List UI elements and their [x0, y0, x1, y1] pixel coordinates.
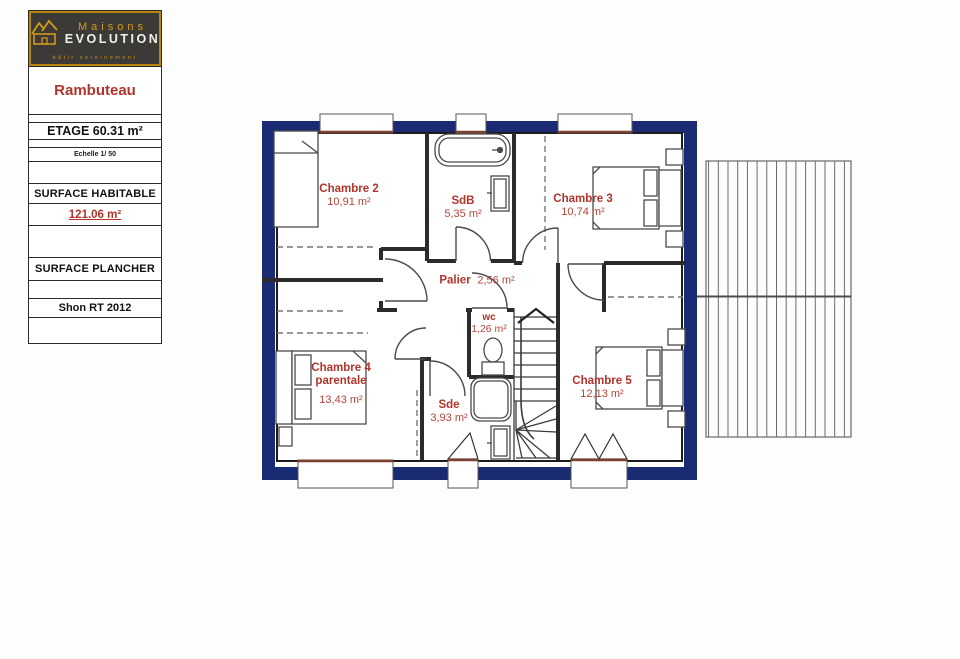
- bed-single-chambre2: [274, 131, 318, 227]
- shower-room-sink: [487, 426, 510, 459]
- bathtub: [435, 134, 510, 166]
- shower: [471, 378, 511, 421]
- toilet: [482, 338, 504, 375]
- floor-plan-page: Maisons EVOLUTION bâtir sereinement Ramb…: [0, 0, 960, 659]
- windows-top: [320, 114, 632, 133]
- floor-plan-drawing: [0, 0, 960, 659]
- roof-hatch-area: [697, 161, 851, 437]
